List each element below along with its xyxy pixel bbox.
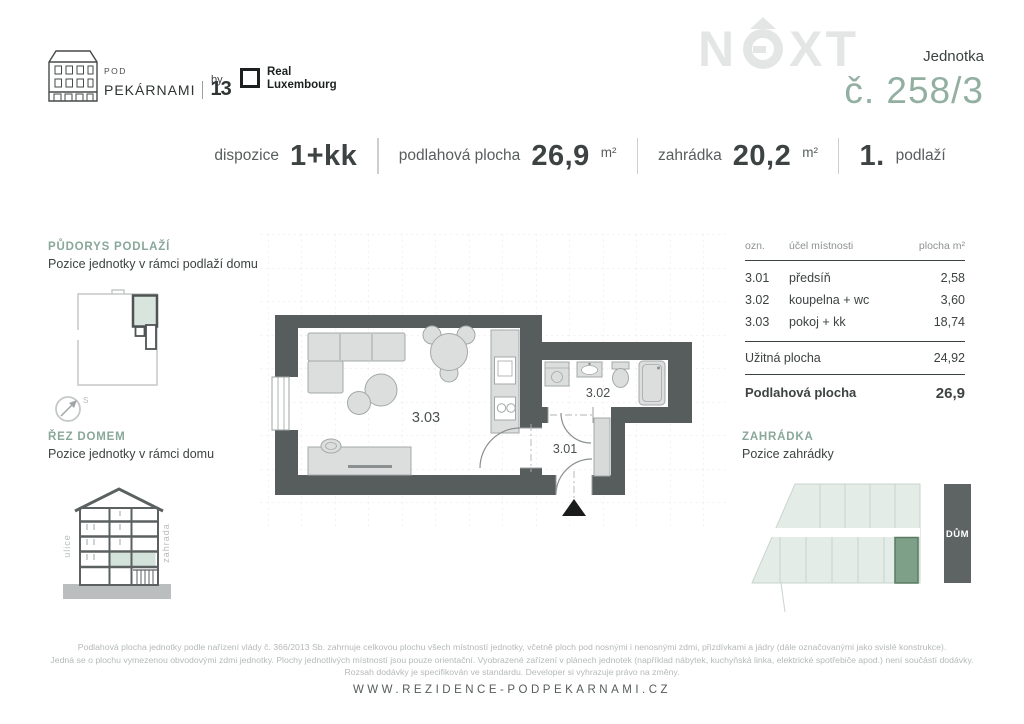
garden-path [754, 528, 920, 537]
spec-podlahova-plocha: podlahová plocha 26,9 m² [399, 140, 617, 173]
room-label-302: 3.02 [586, 386, 610, 400]
section-subtitle: Pozice jednotky v rámci domu [48, 447, 214, 461]
bathroom-sink [577, 362, 602, 377]
garden-subtitle: Pozice zahrádky [742, 447, 834, 461]
spec-zahradka: zahrádka 20,2 m² [658, 140, 818, 173]
garden-section-heading: ZAHRÁDKA Pozice zahrádky [742, 431, 834, 461]
brand-building-icon [49, 51, 97, 101]
window [272, 377, 289, 430]
spec-separator [377, 138, 379, 174]
disclaimer-line: Jedná se o plochu vymezenou obvodovými z… [0, 654, 1024, 667]
partner-logo: Real Luxembourg [240, 66, 337, 91]
garden-plot-highlight [895, 538, 918, 584]
next-logo-e-icon [743, 29, 783, 69]
building-section-diagram: ulice zahrada [62, 489, 171, 599]
spec-separator [637, 138, 639, 174]
spec-strip: dispozice 1+kk podlahová plocha 26,9 m² … [150, 138, 1010, 174]
spec-podlazi: 1. podlaží [859, 140, 945, 173]
partner-name: Real Luxembourg [267, 66, 337, 91]
disclaimer-line: Rozsah dodávky je specifikován ve standa… [0, 666, 1024, 679]
room-label-301: 3.01 [553, 442, 577, 456]
unit-label: Jednotka [844, 48, 984, 65]
table-total-row: Podlahová plocha 26,9 [745, 374, 965, 402]
washing-machine [545, 362, 569, 386]
floorplan-title: PŮDORYS PODLAŽÍ [48, 241, 258, 253]
hall-wardrobe [594, 418, 610, 476]
section-street-label: ulice [62, 534, 72, 558]
table-row: 3.03 pokoj + kk 18,74 [745, 311, 965, 333]
brand-name: PEKÁRNAMI [104, 82, 195, 98]
section-title: ŘEZ DOMEM [48, 431, 214, 443]
garden-diagram: DŮM [752, 484, 971, 612]
table-header-row: ozn. účel místnosti plocha m² [745, 240, 965, 261]
room-label-303: 3.03 [412, 410, 440, 426]
section-section-heading: ŘEZ DOMEM Pozice jednotky v rámci domu [48, 431, 214, 461]
toilet [612, 362, 629, 388]
floorplan-section-heading: PŮDORYS PODLAŽÍ Pozice jednotky v rámci … [48, 241, 258, 271]
compass-north-label: S [83, 396, 88, 405]
compass-icon: S [56, 396, 88, 421]
table-subtotal-row: Užitná plocha 24,92 [745, 341, 965, 374]
kitchen-column [491, 330, 519, 433]
brand-divider [202, 81, 203, 99]
brochure-page: S ulice zahrada [0, 0, 1024, 724]
section-garden-label: zahrada [161, 523, 171, 563]
unit-block: Jednotka č. 258/3 [844, 48, 984, 112]
spec-dispozice: dispozice 1+kk [214, 140, 357, 173]
footer-disclaimer: Podlahová plocha jednotky podle nařízení… [0, 641, 1024, 679]
bathtub [639, 361, 665, 405]
partner-square-icon [240, 68, 260, 88]
unit-highlight [133, 296, 157, 327]
disclaimer-line: Podlahová plocha jednotky podle nařízení… [0, 641, 1024, 654]
floor-position-plan [76, 290, 157, 385]
section-unit-highlight [111, 553, 156, 567]
areas-table: ozn. účel místnosti plocha m² 3.01 předs… [745, 240, 965, 402]
table-row: 3.02 koupelna + wc 3,60 [745, 289, 965, 311]
next-watermark-logo: N X T [698, 24, 859, 74]
unit-number: č. 258/3 [844, 70, 984, 112]
garden-title: ZAHRÁDKA [742, 431, 834, 443]
garden-house-label: DŮM [946, 528, 969, 540]
table-row: 3.01 předsíň 2,58 [745, 267, 965, 289]
website-url[interactable]: WWW.REZIDENCE-PODPEKARNAMI.CZ [0, 684, 1024, 696]
main-floor-plan: 3.03 3.02 3.01 [258, 232, 726, 530]
spec-separator [838, 138, 840, 174]
floorplan-subtitle: Pozice jednotky v rámci podlaží domu [48, 257, 258, 271]
by-label: by [211, 74, 223, 86]
